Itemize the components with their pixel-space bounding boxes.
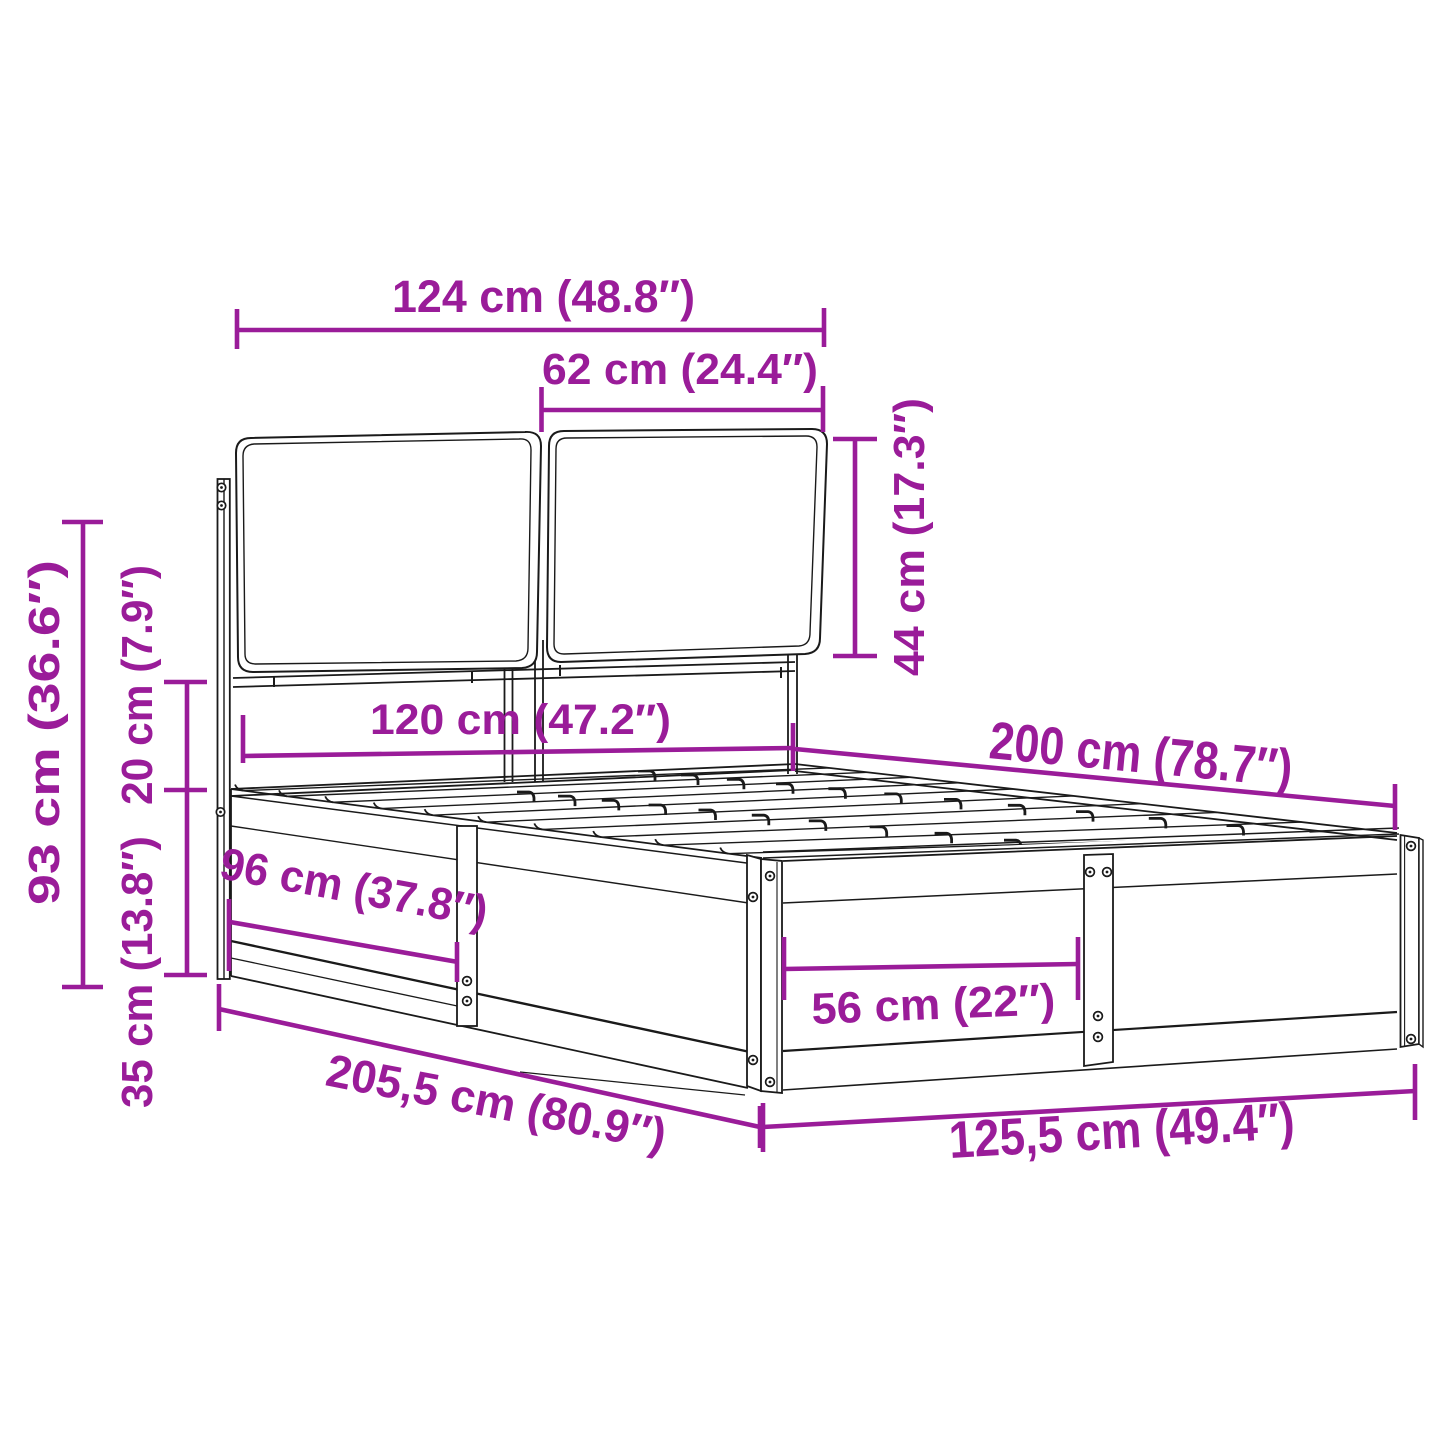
svg-text:56 cm (22″): 56 cm (22″) — [810, 975, 1056, 1034]
svg-text:20 cm (7.9″): 20 cm (7.9″) — [113, 565, 162, 805]
svg-text:35 cm (13.8″): 35 cm (13.8″) — [113, 836, 162, 1108]
svg-text:62 cm (24.4″): 62 cm (24.4″) — [542, 345, 818, 394]
svg-text:93 cm (36.6″): 93 cm (36.6″) — [20, 560, 69, 905]
svg-text:44 cm (17.3″): 44 cm (17.3″) — [885, 398, 934, 676]
svg-text:124 cm (48.8″): 124 cm (48.8″) — [392, 271, 695, 322]
svg-text:120 cm (47.2″): 120 cm (47.2″) — [370, 696, 671, 744]
